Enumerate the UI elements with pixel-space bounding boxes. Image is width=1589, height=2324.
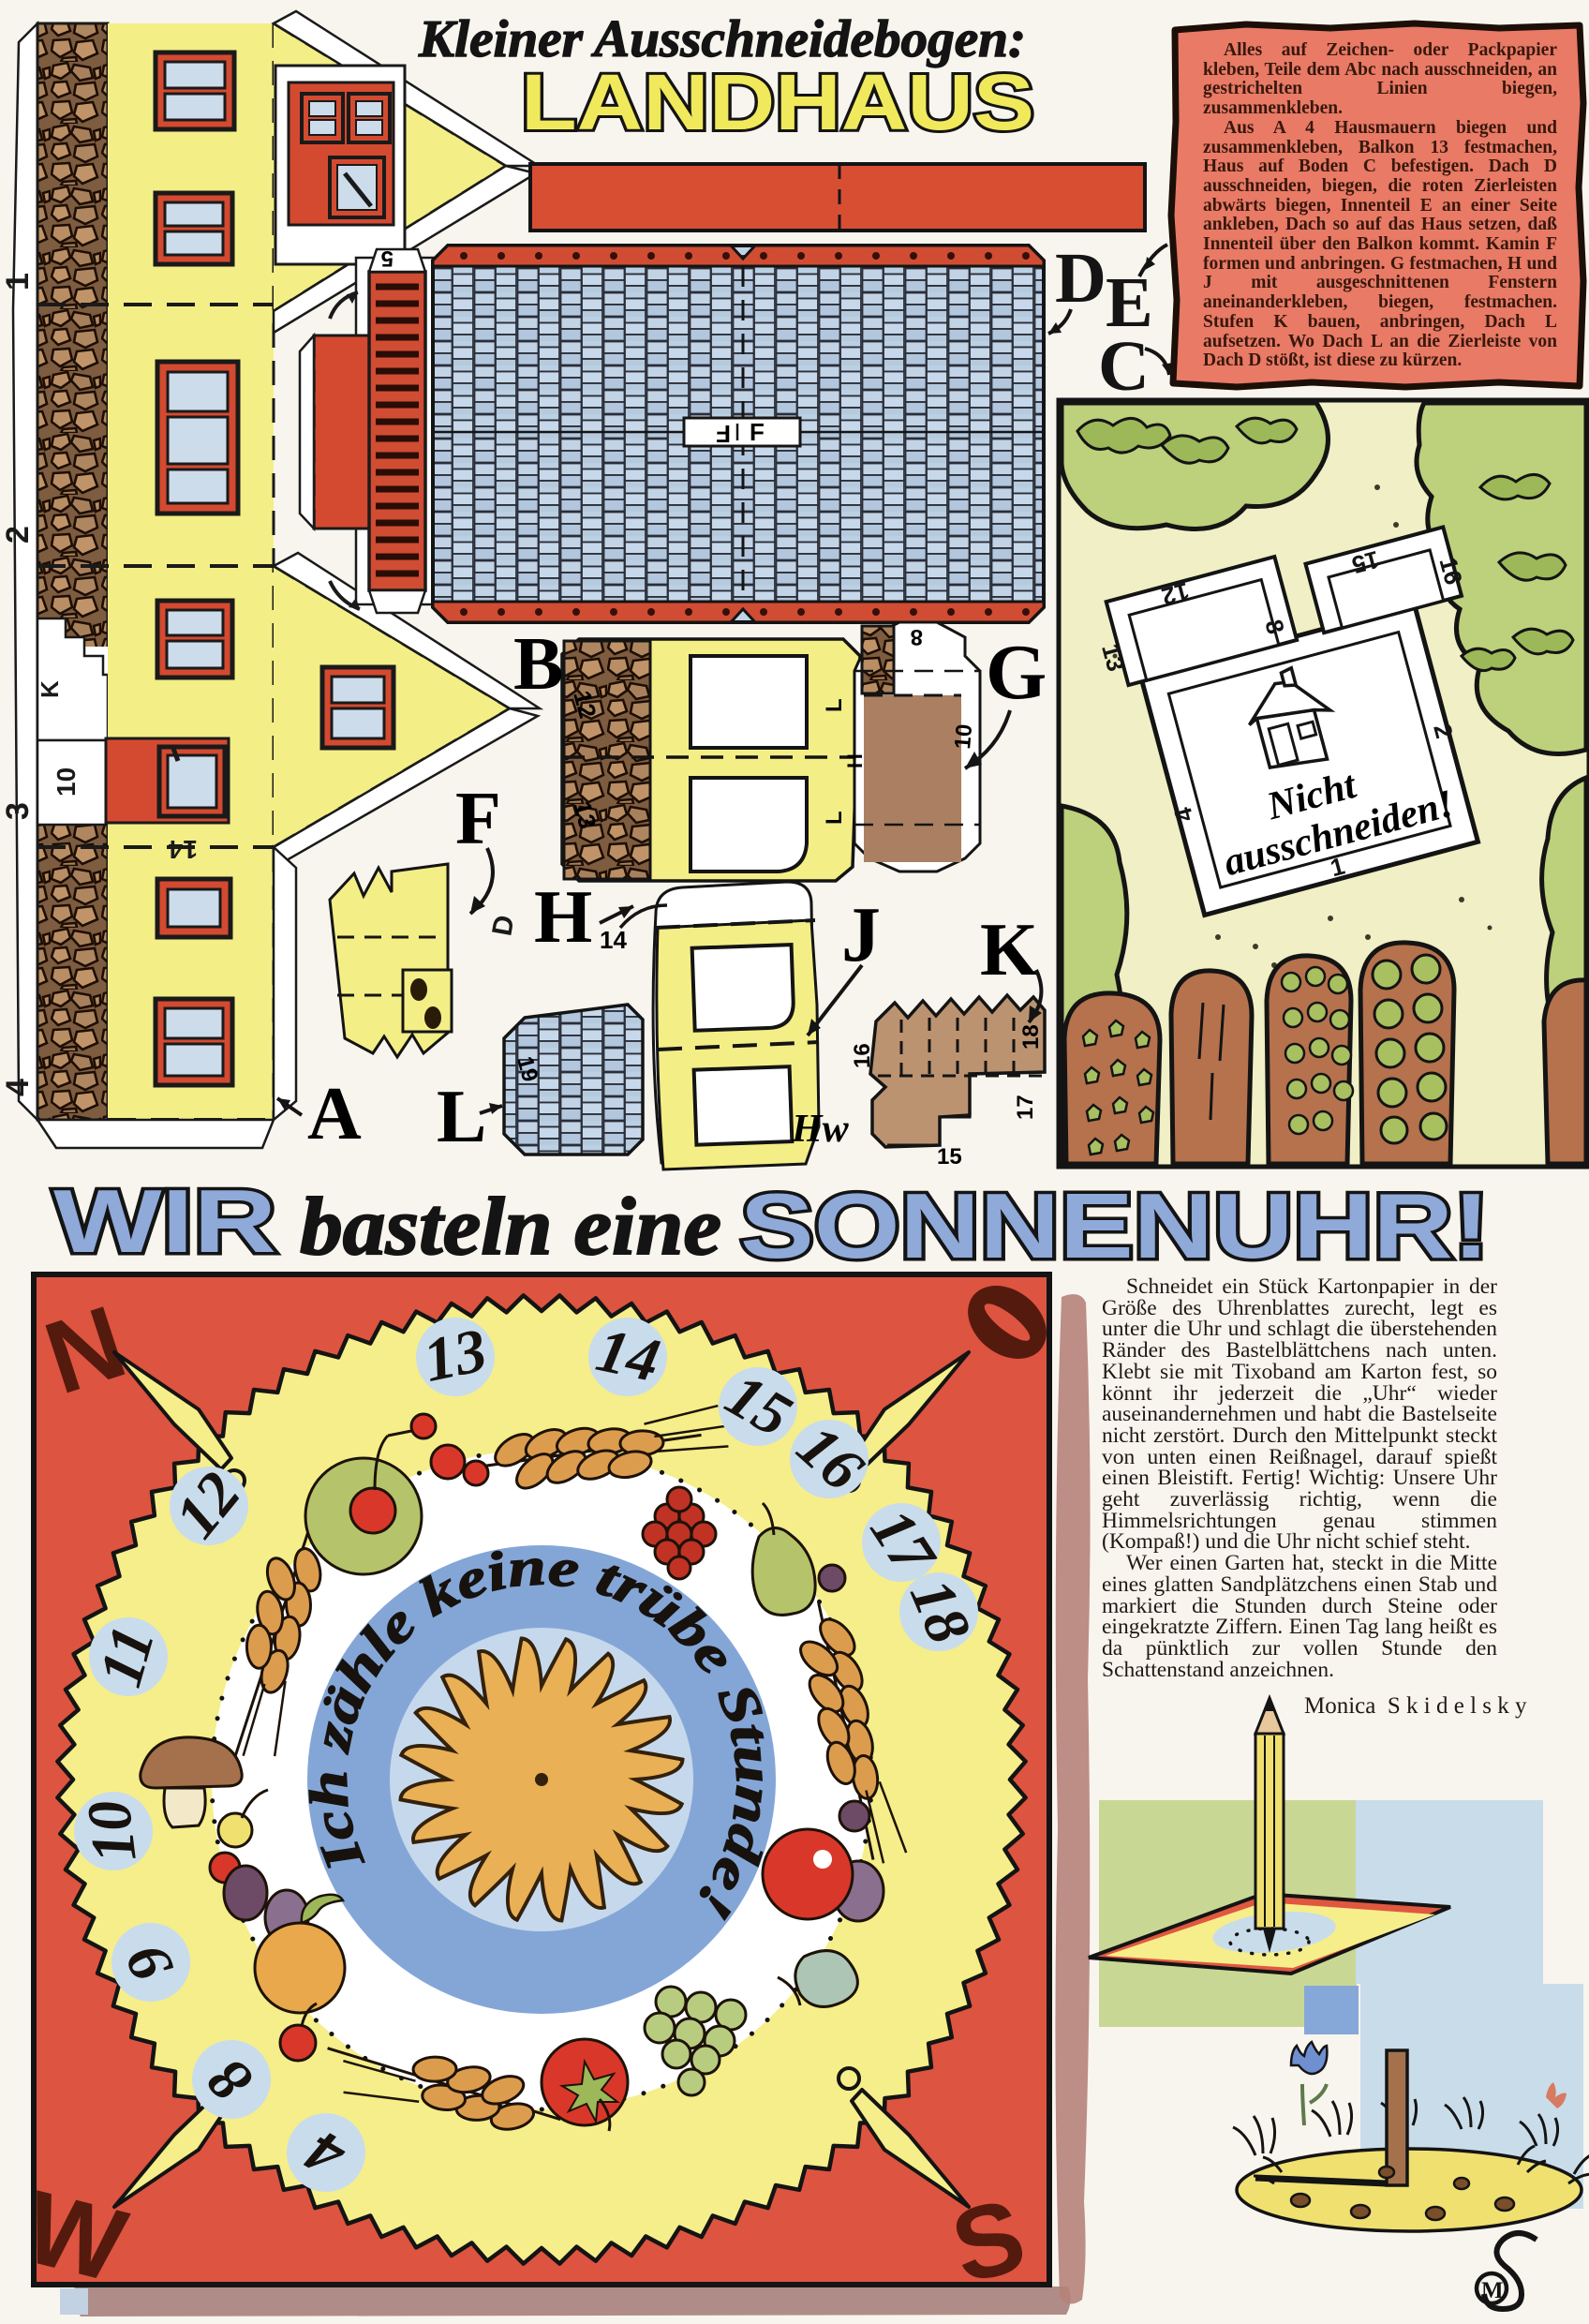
svg-text:WIR: WIR [53, 1171, 276, 1272]
svg-text:L: L [822, 811, 847, 825]
svg-text:17: 17 [1013, 1095, 1038, 1120]
svg-text:3: 3 [0, 802, 36, 820]
svg-text:F: F [455, 778, 501, 860]
svg-text:4: 4 [0, 1079, 36, 1096]
svg-text:L: L [437, 1076, 486, 1158]
svg-text:K: K [980, 909, 1038, 991]
svg-text:Monica S k i d e l s k y: Monica S k i d e l s k y [1304, 1693, 1527, 1719]
svg-text:D: D [1055, 239, 1106, 318]
svg-text:14: 14 [168, 835, 198, 864]
svg-text:SONNENUHR!: SONNENUHR! [740, 1174, 1490, 1277]
svg-text:H: H [534, 876, 592, 959]
svg-text:basteln eine: basteln eine [300, 1182, 721, 1273]
svg-text:LANDHAUS: LANDHAUS [521, 58, 1034, 146]
svg-text:L: L [822, 698, 847, 712]
svg-text:F: F [716, 420, 731, 448]
svg-text:1: 1 [0, 273, 36, 290]
svg-text:H: H [843, 753, 867, 768]
svg-text:B: B [513, 623, 563, 706]
svg-text:10: 10 [74, 1796, 149, 1866]
svg-text:M: M [1481, 2278, 1504, 2303]
svg-text:10: 10 [52, 767, 81, 797]
svg-text:F: F [750, 418, 765, 446]
svg-text:18: 18 [1018, 1024, 1044, 1050]
svg-text:16: 16 [850, 1043, 875, 1068]
svg-text:K: K [36, 680, 64, 698]
svg-text:C: C [1098, 327, 1150, 406]
svg-text:15: 15 [937, 1144, 962, 1169]
svg-text:A: A [307, 1073, 362, 1155]
svg-text:2: 2 [0, 526, 36, 544]
svg-text:5: 5 [381, 246, 394, 271]
svg-text:10: 10 [950, 723, 977, 751]
svg-text:8: 8 [911, 624, 923, 649]
svg-text:14: 14 [600, 926, 627, 954]
svg-text:G: G [986, 629, 1047, 716]
svg-text:Hw: Hw [791, 1108, 850, 1151]
